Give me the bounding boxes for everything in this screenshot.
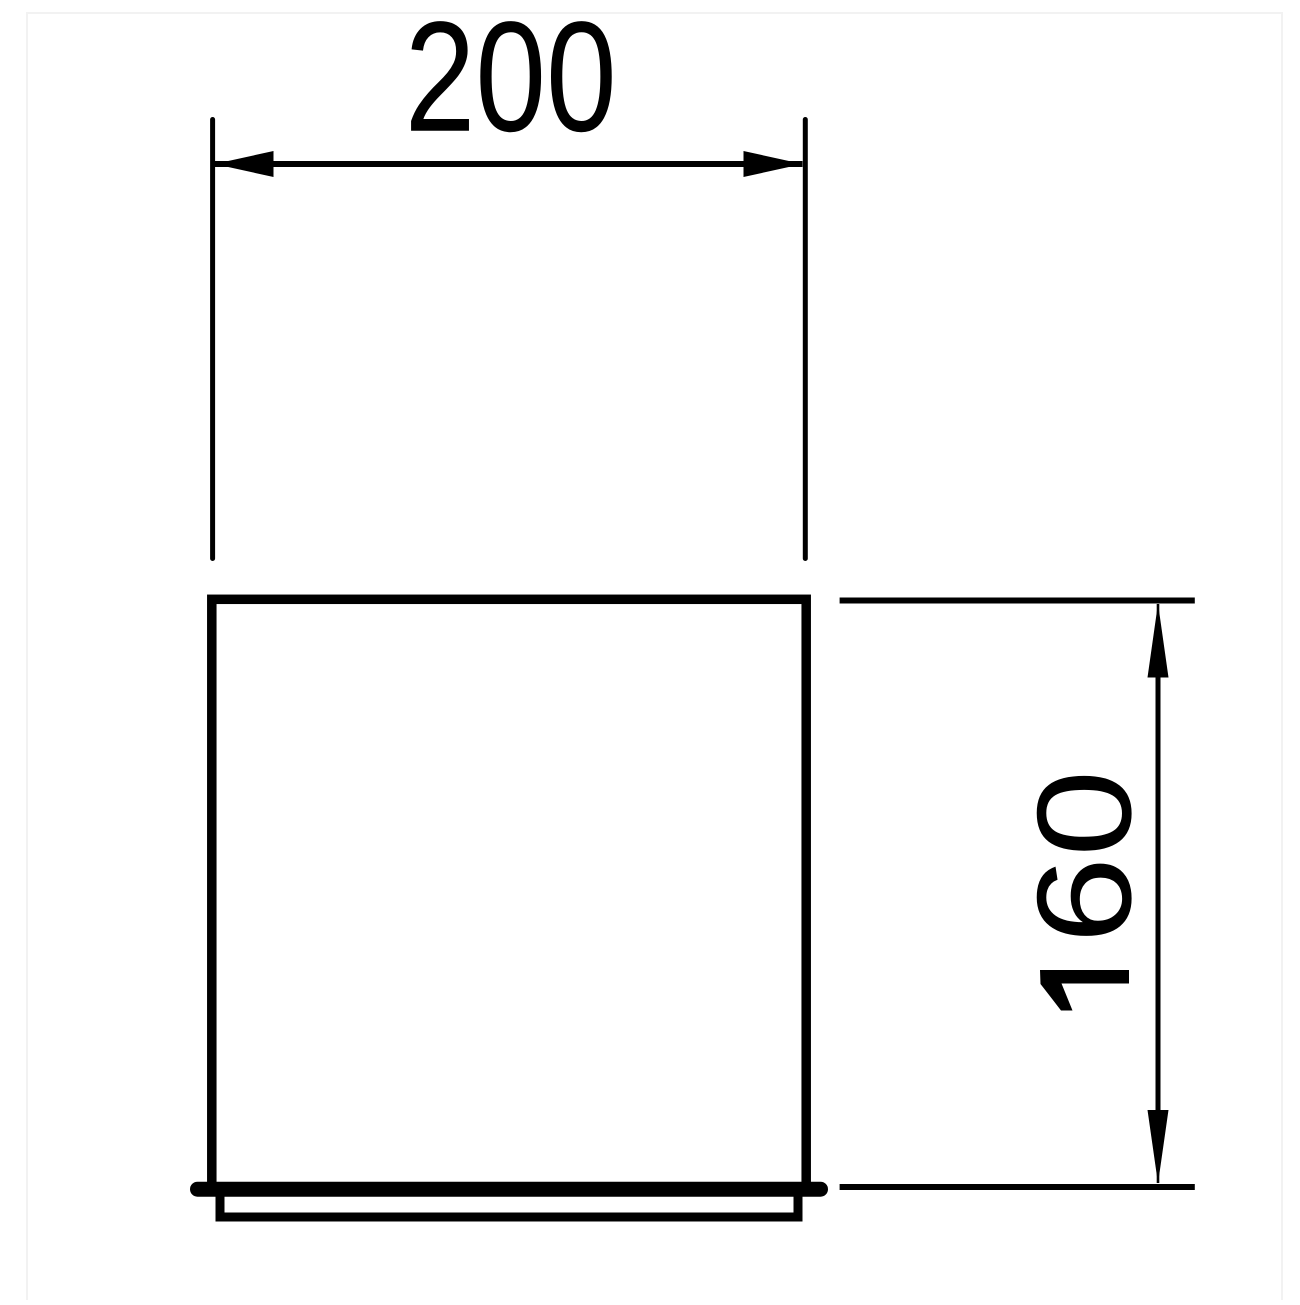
svg-text:60: 60 xyxy=(1010,770,1159,944)
svg-text:200: 200 xyxy=(405,0,617,165)
